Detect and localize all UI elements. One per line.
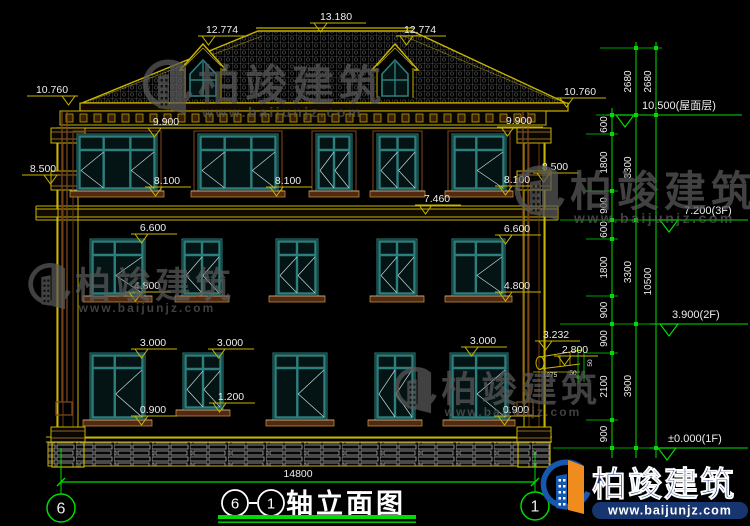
brand-logo-icon bbox=[31, 263, 69, 309]
elevation-drawing-canvas: 13.18012.77412.77410.76010.7609.9009.900… bbox=[0, 0, 750, 526]
label: 7.460 bbox=[424, 193, 450, 205]
label: 12.774 bbox=[206, 24, 238, 36]
label: 14800 bbox=[283, 468, 312, 480]
window bbox=[370, 131, 425, 197]
brand-logo: 柏竣建筑www.baijunjz.com bbox=[543, 460, 748, 519]
label: 50 bbox=[587, 359, 594, 367]
stone-base bbox=[46, 437, 552, 466]
brand-text: 柏竣建筑 bbox=[592, 465, 736, 504]
cad-elevation-svg: 13.18012.77412.77410.76010.7609.9009.900… bbox=[0, 0, 750, 526]
label: 9.900 bbox=[153, 116, 179, 128]
label: 1 bbox=[531, 499, 540, 516]
window bbox=[266, 353, 334, 426]
label: 0.900 bbox=[140, 404, 166, 416]
watermark: 柏竣建筑www.baijunjz.com bbox=[517, 166, 750, 226]
level-marker: 10.500(屋面层) bbox=[606, 99, 742, 127]
watermark-url: www.baijunjz.com bbox=[78, 301, 216, 315]
level-marker-label: 3.900(2F) bbox=[672, 309, 720, 321]
label: 13.180 bbox=[320, 11, 352, 23]
chain-dim-label: 1800 bbox=[599, 256, 610, 279]
watermark: 柏竣建筑www.baijunjz.com bbox=[145, 60, 386, 120]
chain-dim-label: 10500 bbox=[643, 267, 654, 295]
label: 6.600 bbox=[140, 222, 166, 234]
chain-dim-label: 900 bbox=[599, 301, 610, 318]
label: 3.000 bbox=[217, 337, 243, 349]
label: 1 bbox=[267, 496, 275, 513]
drawing-title: 61轴立面图 bbox=[218, 488, 416, 523]
chain-dim-label: 600 bbox=[599, 116, 610, 133]
chain-dim-label: 2680 bbox=[623, 70, 634, 93]
chain-dim-label: 900 bbox=[599, 425, 610, 442]
level-marker: 3.900(2F) bbox=[650, 309, 748, 336]
chain-dim-label: 3900 bbox=[623, 374, 634, 397]
chain-dim-label: 3300 bbox=[623, 260, 634, 283]
brand-logo-icon bbox=[543, 460, 588, 514]
brand-url: www.baijunjz.com bbox=[607, 504, 732, 518]
chain-dim-label: 2680 bbox=[643, 70, 654, 93]
watermark-url: www.baijunjz.com bbox=[444, 405, 582, 419]
level-marker-label: ±0.000(1F) bbox=[668, 433, 722, 445]
elevation-label: 10.760 bbox=[27, 84, 78, 105]
label: 6.600 bbox=[504, 223, 530, 235]
watermark-text: 柏竣建筑 bbox=[75, 265, 235, 305]
dimension-chain: 600180090060018009009002100900 bbox=[599, 108, 614, 458]
watermark-text: 柏竣建筑 bbox=[570, 168, 750, 215]
label: 6 bbox=[231, 496, 239, 513]
dimension-chain: 2680330033003900 bbox=[623, 42, 638, 458]
title-text: 轴立面图 bbox=[286, 488, 406, 519]
label: 12.774 bbox=[404, 24, 436, 36]
elevation-label: 13.180 bbox=[310, 11, 366, 32]
label: 10.760 bbox=[36, 84, 68, 96]
label: 3.000 bbox=[140, 337, 166, 349]
window bbox=[445, 131, 513, 197]
window bbox=[176, 353, 230, 416]
chain-dim-label: 900 bbox=[599, 330, 610, 347]
label: 9.900 bbox=[506, 115, 532, 127]
watermark: 柏竣建筑www.baijunjz.com bbox=[31, 263, 235, 314]
window bbox=[269, 239, 325, 302]
label: 8.500 bbox=[30, 163, 56, 175]
watermark-url: www.baijunjz.com bbox=[573, 210, 735, 226]
window bbox=[309, 131, 359, 197]
label: 10.760 bbox=[564, 86, 596, 98]
window bbox=[370, 239, 424, 302]
level-marker: ±0.000(1F) bbox=[650, 433, 748, 460]
window bbox=[445, 239, 512, 302]
label: 3.232 bbox=[543, 329, 569, 341]
watermark-url: www.baijunjz.com bbox=[201, 104, 363, 120]
overall-width-dimension: 14800 bbox=[57, 468, 539, 486]
label: 3.000 bbox=[470, 335, 496, 347]
watermark-text: 柏竣建筑 bbox=[198, 62, 386, 109]
label: 8.100 bbox=[275, 175, 301, 187]
level-marker-label: 10.500(屋面层) bbox=[642, 99, 716, 112]
label: 2.800 bbox=[562, 344, 588, 356]
label: 8.100 bbox=[154, 175, 180, 187]
watermark-text: 柏竣建筑 bbox=[441, 369, 601, 409]
label: 1.200 bbox=[218, 391, 244, 403]
label: 4.800 bbox=[504, 280, 530, 292]
watermark: 柏竣建筑www.baijunjz.com bbox=[397, 367, 601, 418]
belt-course bbox=[36, 206, 558, 220]
label: 6 bbox=[57, 501, 66, 518]
